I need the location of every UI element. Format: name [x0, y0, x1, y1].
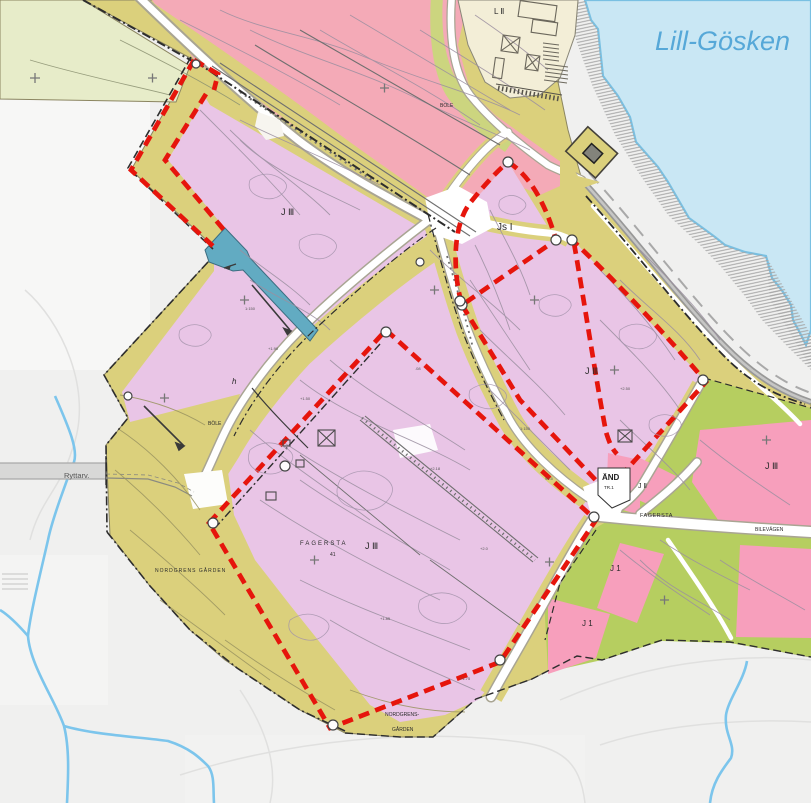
svg-text:90.5: 90.5 [545, 476, 554, 481]
svg-text:J Ⅱ: J Ⅱ [638, 483, 647, 490]
svg-text:+2.0: +2.0 [480, 546, 489, 551]
svg-text:ÄND: ÄND [602, 473, 620, 482]
svg-text:J Ⅲ: J Ⅲ [281, 207, 294, 217]
svg-text:+1.50: +1.50 [300, 396, 311, 401]
svg-text:GÅRDEN: GÅRDEN [392, 726, 414, 733]
svg-text:1:150: 1:150 [245, 306, 256, 311]
svg-text:41: 41 [330, 552, 336, 558]
svg-text:BOLE: BOLE [440, 103, 454, 109]
svg-text:h: h [232, 377, 237, 386]
svg-text:FAGERSTA: FAGERSTA [300, 541, 348, 547]
svg-text:+2.18: +2.18 [430, 466, 441, 471]
svg-text:L Ⅱ: L Ⅱ [494, 7, 504, 16]
svg-text:NORDGRENS GÅRDEN: NORDGRENS GÅRDEN [155, 567, 226, 574]
svg-text:+1.75: +1.75 [460, 676, 471, 681]
svg-text:Ryttarv.: Ryttarv. [64, 471, 89, 480]
svg-text:.08: .08 [415, 366, 421, 371]
svg-text:J Ⅲ: J Ⅲ [365, 541, 378, 551]
svg-text:TR.1: TR.1 [604, 485, 614, 490]
svg-text:+1.85: +1.85 [380, 616, 391, 621]
svg-text:J Ⅲ: J Ⅲ [765, 461, 778, 471]
svg-text:Lill-Gösken: Lill-Gösken [655, 26, 790, 56]
svg-text:BÖLE: BÖLE [208, 420, 222, 427]
svg-text:NORDGRENS-: NORDGRENS- [385, 712, 420, 718]
svg-text:+2.50: +2.50 [620, 386, 631, 391]
svg-text:1:150: 1:150 [520, 426, 531, 431]
svg-text:J 1: J 1 [610, 564, 621, 573]
svg-text:FAGERSTA: FAGERSTA [640, 513, 673, 519]
svg-text:BILEVÄGEN: BILEVÄGEN [755, 526, 784, 533]
svg-text:+1.90: +1.90 [268, 346, 279, 351]
svg-text:J Ⅲ: J Ⅲ [585, 366, 598, 376]
svg-text:J 1: J 1 [582, 619, 593, 628]
svg-text:Js I: Js I [497, 222, 513, 233]
